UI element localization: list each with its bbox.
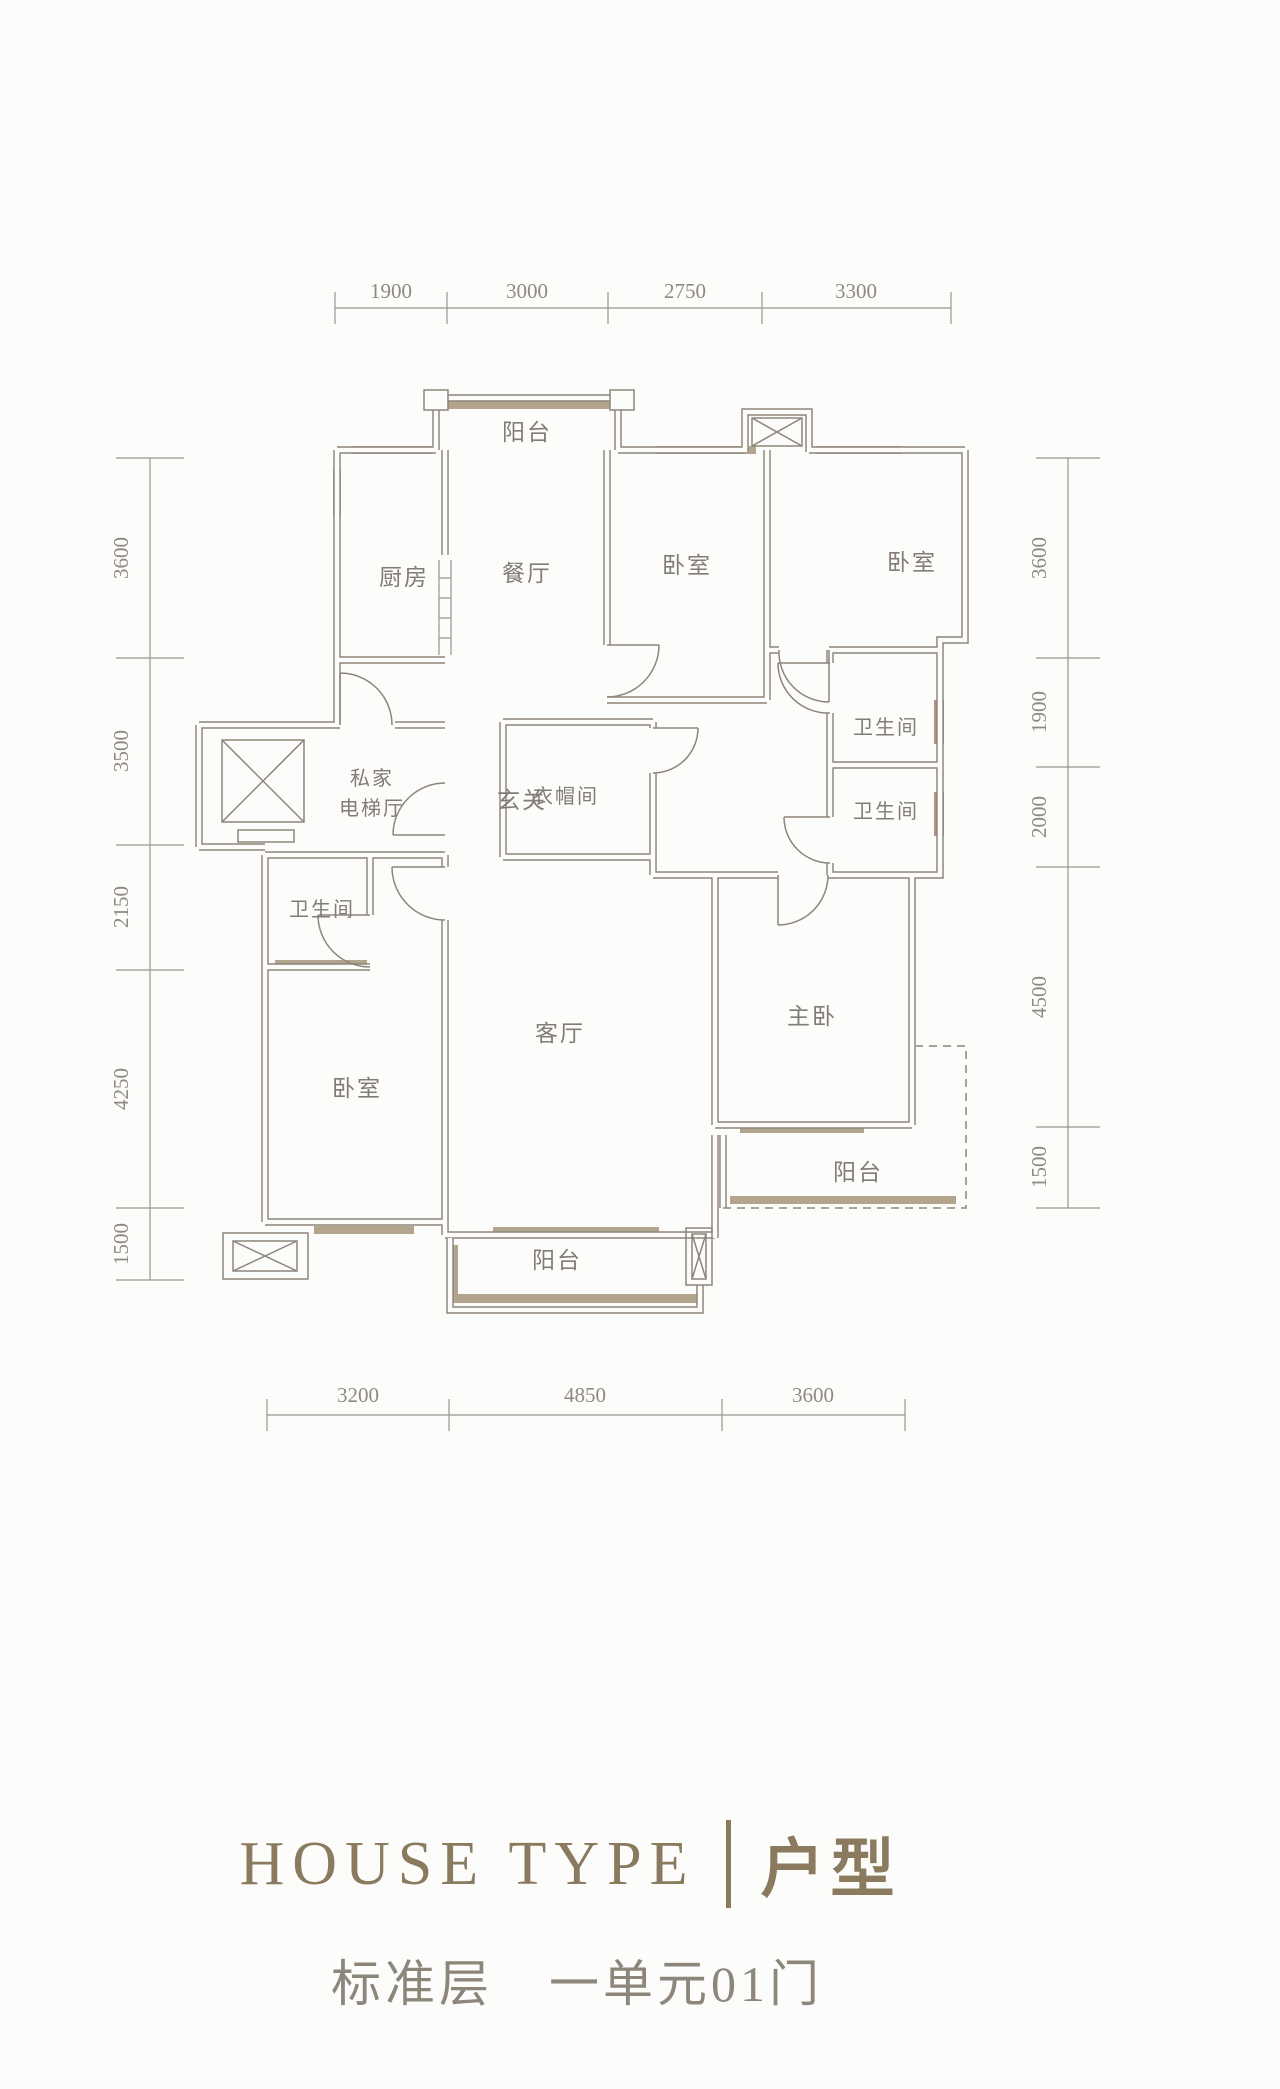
room-label-elevator-hall-1: 私家 [350,767,394,790]
dim-top-0: 1900 [370,279,412,303]
dim-right-0: 3600 [1027,537,1051,579]
dim-top-1: 3000 [506,279,548,303]
room-label-living: 客厅 [535,1021,585,1046]
subtitle-unit: 一单元01门 [549,1944,823,2016]
room-label-bedroom-left: 卧室 [332,1076,382,1101]
subtitle-floor: 标准层 [331,1944,493,2016]
room-label-kitchen: 厨房 [379,565,429,590]
room-label-bath-left: 卫生间 [289,898,355,921]
room-label-dining: 餐厅 [502,561,552,586]
room-label-elevator-hall-2: 电梯厅 [339,797,405,820]
dim-right-2: 2000 [1027,796,1051,838]
dim-bottom-0: 3200 [337,1383,379,1407]
dim-right-1: 1900 [1027,691,1051,733]
dim-top-3: 3300 [835,279,877,303]
dim-bottom-1: 4850 [564,1383,606,1407]
elevator-shaft-icon [222,740,304,842]
window-x-icon-left [223,1233,308,1279]
house-type-title-en: HOUSE TYPE [239,1829,695,1900]
dim-left-2: 2150 [109,886,133,928]
dim-top-2: 2750 [664,279,706,303]
room-label-bath-right-1: 卫生间 [853,716,919,739]
dim-left-4: 1500 [109,1223,133,1265]
dim-left-3: 4250 [109,1068,133,1110]
room-label-balcony-right: 阳台 [833,1160,883,1185]
room-label-bath-right-2: 卫生间 [853,800,919,823]
flue-x-icon [752,418,802,446]
footer-subtitle: 标准层 一单元01门 [97,1944,1057,2016]
dim-right-3: 4500 [1027,976,1051,1018]
kitchen-pass-hatch [439,560,451,655]
dim-bottom-2: 3600 [792,1383,834,1407]
room-label-bedroom-top-1: 卧室 [662,553,712,578]
room-label-bedroom-top-2: 卧室 [887,550,937,575]
dim-right-4: 1500 [1027,1146,1051,1188]
house-type-title-zh: 户型 [761,1818,901,1910]
dim-left-0: 3600 [109,537,133,579]
footer-title: HOUSE TYPE 户型 [90,1818,1050,1910]
dim-left-1: 3500 [109,730,133,772]
room-label-cloakroom: 衣帽间 [533,785,599,808]
title-divider [726,1820,731,1908]
room-label-master-bedroom: 主卧 [787,1004,837,1029]
floor-plan-drawing: 1900 3000 2750 3300 3200 4850 3600 3600 … [0,0,1280,1540]
floor-plan-page: 1900 3000 2750 3300 3200 4850 3600 3600 … [0,0,1280,2089]
room-label-balcony-top: 阳台 [502,420,552,445]
room-label-balcony-bottom: 阳台 [532,1248,582,1273]
